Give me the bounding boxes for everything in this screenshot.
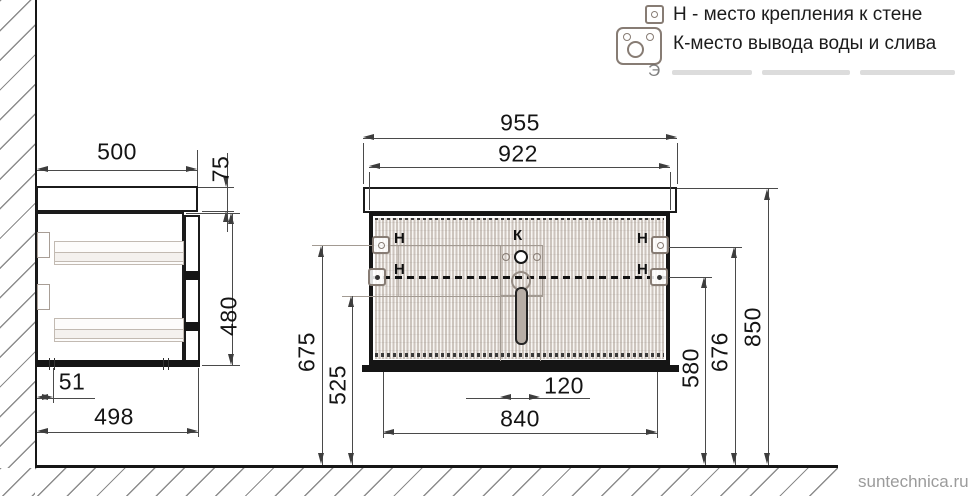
legend-faded-text-remnant — [762, 70, 850, 75]
wall-bracket-lower — [37, 284, 50, 310]
water-outlet-icon — [514, 250, 528, 264]
wall-hatching — [0, 0, 37, 468]
drain-hole-small-left — [623, 33, 631, 41]
dimension-arrow — [731, 453, 737, 464]
mount-label-lower-right: Н — [637, 261, 648, 278]
dimension-arrow — [228, 354, 234, 365]
dimension-arrow — [348, 453, 354, 464]
drain-zone-edge-left — [500, 296, 501, 361]
legend-drain-text: К-место вывода воды и слива — [673, 33, 936, 55]
wall-mount-marker-upper-left — [372, 236, 390, 254]
tick — [163, 358, 164, 370]
floor-hatching-left — [0, 468, 35, 496]
dimension-line — [37, 432, 198, 433]
wall-mount-marker-lower-right — [650, 268, 668, 286]
wall-bracket-upper — [37, 232, 50, 258]
dimension-arrow — [701, 277, 707, 288]
dim-mount-spacing: 840 — [500, 406, 540, 433]
dimension-arrow — [764, 453, 770, 464]
dimension-line — [363, 138, 677, 139]
extension-line — [677, 188, 778, 189]
drain-zone-edge-right — [540, 296, 541, 361]
dim-mount-lower-height: 580 — [678, 348, 705, 388]
dimension-line — [37, 170, 197, 171]
dim-front-countertop-width: 955 — [500, 110, 540, 137]
dim-side-cabinet-height: 480 — [216, 296, 243, 336]
extension-line — [677, 143, 678, 184]
dimension-arrow — [363, 134, 374, 140]
mount-hole-icon — [657, 242, 664, 249]
mount-dot-icon — [657, 275, 662, 280]
technical-drawing-vanity: 500 75 480 51 498 Н Н — [0, 0, 970, 496]
wall-mount-marker-lower-left — [368, 268, 386, 286]
wall-mount-marker-upper-right — [651, 236, 669, 254]
dim-mount-upper-right-height: 676 — [707, 332, 734, 372]
wall-mount-icon — [645, 5, 664, 24]
drawer-rail-lower-inner — [54, 329, 184, 339]
dimension-line — [768, 189, 769, 465]
drain-label: К — [513, 227, 522, 244]
extension-line — [369, 172, 370, 210]
dim-drain-zone-bottom-height: 525 — [325, 365, 352, 405]
dimension-arrow — [37, 166, 48, 172]
drain-icon — [616, 27, 662, 65]
floor-hatching — [35, 465, 838, 496]
side-bottom-panel — [36, 360, 200, 367]
mount-label-upper-left: Н — [394, 230, 405, 247]
front-countertop — [363, 187, 677, 213]
flute-bottom-ticks — [375, 353, 664, 357]
extension-line — [202, 365, 240, 366]
watermark: suntechnica.ru — [858, 472, 969, 492]
dimension-line — [232, 213, 233, 365]
dim-side-countertop-height: 75 — [208, 156, 235, 183]
dimension-line — [322, 246, 323, 465]
dimension-arrow — [318, 246, 324, 257]
flute-top-ticks — [375, 218, 664, 220]
legend-wall-mount-text: Н - место крепления к стене — [673, 4, 922, 26]
dimension-arrow — [500, 394, 511, 400]
mount-label-upper-right: Н — [637, 230, 648, 247]
tick — [54, 358, 55, 370]
dimension-arrow — [659, 163, 670, 169]
dim-total-height: 850 — [740, 307, 767, 347]
extension-line — [657, 372, 658, 438]
tick — [49, 358, 50, 370]
inner-rect-bottom-line — [342, 296, 543, 297]
dimension-arrow — [764, 189, 770, 200]
dimension-arrow — [37, 428, 48, 434]
dim-mount-upper-left-height: 675 — [294, 332, 321, 372]
dimension-arrow — [228, 213, 234, 224]
mount-label-lower-left: Н — [394, 261, 405, 278]
extension-line — [198, 187, 234, 188]
dim-front-cabinet-width: 922 — [498, 141, 538, 168]
dim-side-depth: 500 — [97, 139, 137, 166]
dimension-arrow — [187, 428, 198, 434]
drain-hole-large — [627, 41, 644, 58]
drawer-rail-upper-inner — [54, 252, 184, 262]
dimension-arrow — [318, 453, 324, 464]
dimension-line — [352, 296, 353, 465]
mount-hole-icon — [378, 242, 385, 249]
dim-side-bottom-offset: 51 — [59, 369, 86, 396]
extension-line — [363, 143, 364, 184]
side-handle-groove-bottom — [184, 322, 200, 331]
dimension-arrow — [186, 166, 197, 172]
legend-faded-line-start: Э — [648, 61, 660, 81]
legend-faded-text-remnant — [860, 70, 955, 75]
dimension-arrow — [646, 429, 657, 435]
drain-pipe — [515, 287, 528, 345]
side-door-panel — [184, 215, 200, 362]
mount-dot-icon — [375, 275, 380, 280]
dim-drain-zone-width: 120 — [544, 373, 584, 400]
drain-hole-small-right — [646, 33, 654, 41]
dimension-arrow — [42, 394, 53, 400]
dimension-arrow — [383, 429, 394, 435]
tick — [168, 358, 169, 370]
legend-faded-text-remnant — [672, 70, 752, 75]
front-plinth — [362, 365, 679, 372]
extension-line — [198, 368, 199, 437]
outlet-side-hole-right — [533, 253, 541, 261]
mount-hole-icon — [651, 11, 658, 18]
dim-side-bottom-depth: 498 — [94, 404, 134, 431]
dimension-line — [735, 247, 736, 465]
dimension-arrow — [666, 134, 677, 140]
dimension-arrow — [529, 394, 540, 400]
outlet-side-hole-left — [502, 253, 510, 261]
dimension-arrow — [731, 247, 737, 258]
dimension-arrow — [348, 296, 354, 307]
dimension-arrow — [701, 453, 707, 464]
extension-line — [670, 172, 671, 210]
dimension-line — [383, 433, 657, 434]
extension-line — [202, 211, 234, 212]
extension-line — [197, 150, 198, 186]
side-countertop — [36, 186, 198, 212]
dimension-arrow — [369, 163, 380, 169]
side-handle-groove-top — [184, 271, 200, 280]
